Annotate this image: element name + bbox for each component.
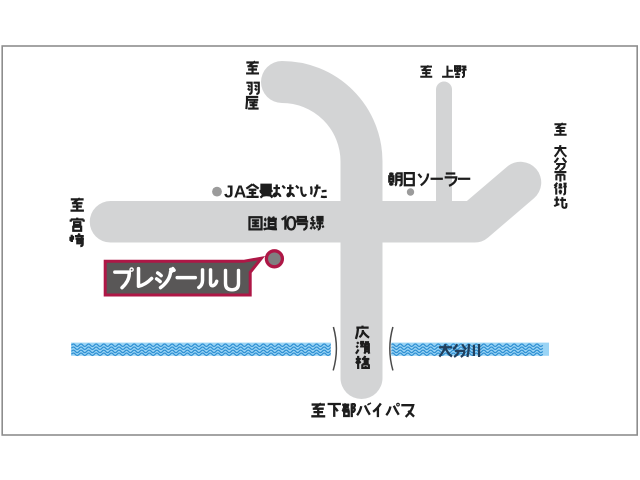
svg-text:JA: JA [224, 182, 247, 202]
